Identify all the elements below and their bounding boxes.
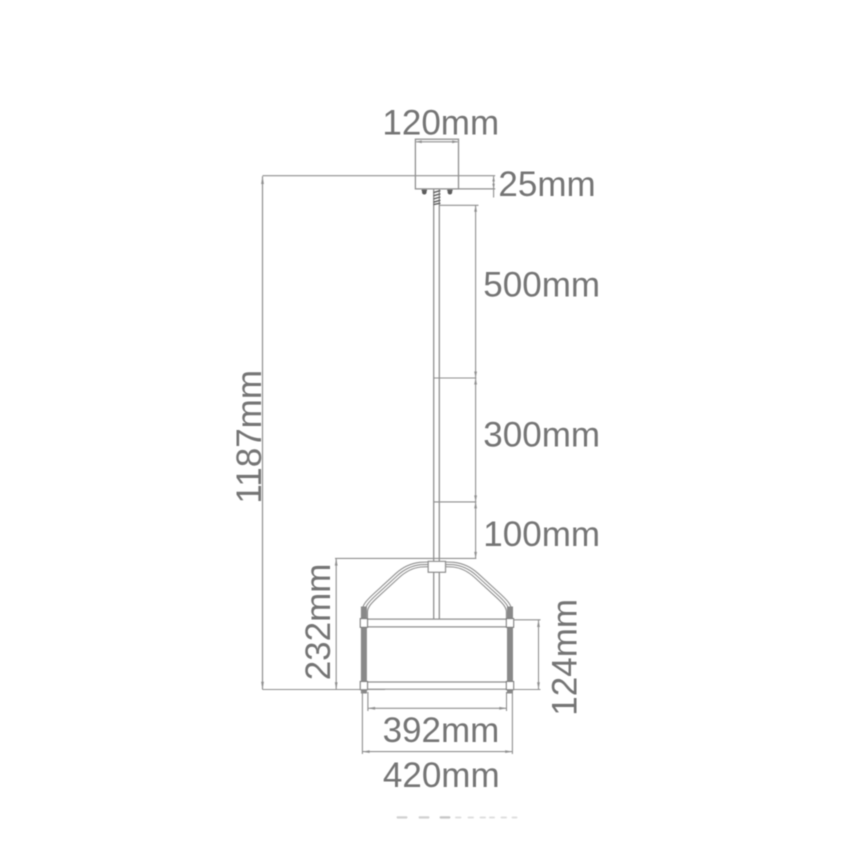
svg-text:25mm: 25mm — [498, 165, 595, 204]
svg-text:120mm: 120mm — [382, 104, 499, 143]
svg-text:420mm: 420mm — [383, 756, 500, 795]
svg-text:124mm: 124mm — [545, 599, 584, 716]
svg-text:500mm: 500mm — [483, 266, 600, 305]
svg-text:232mm: 232mm — [299, 564, 338, 681]
svg-text:100mm: 100mm — [483, 515, 600, 554]
svg-text:300mm: 300mm — [483, 415, 600, 454]
svg-text:1187mm: 1187mm — [230, 370, 269, 504]
svg-text:392mm: 392mm — [383, 711, 500, 750]
